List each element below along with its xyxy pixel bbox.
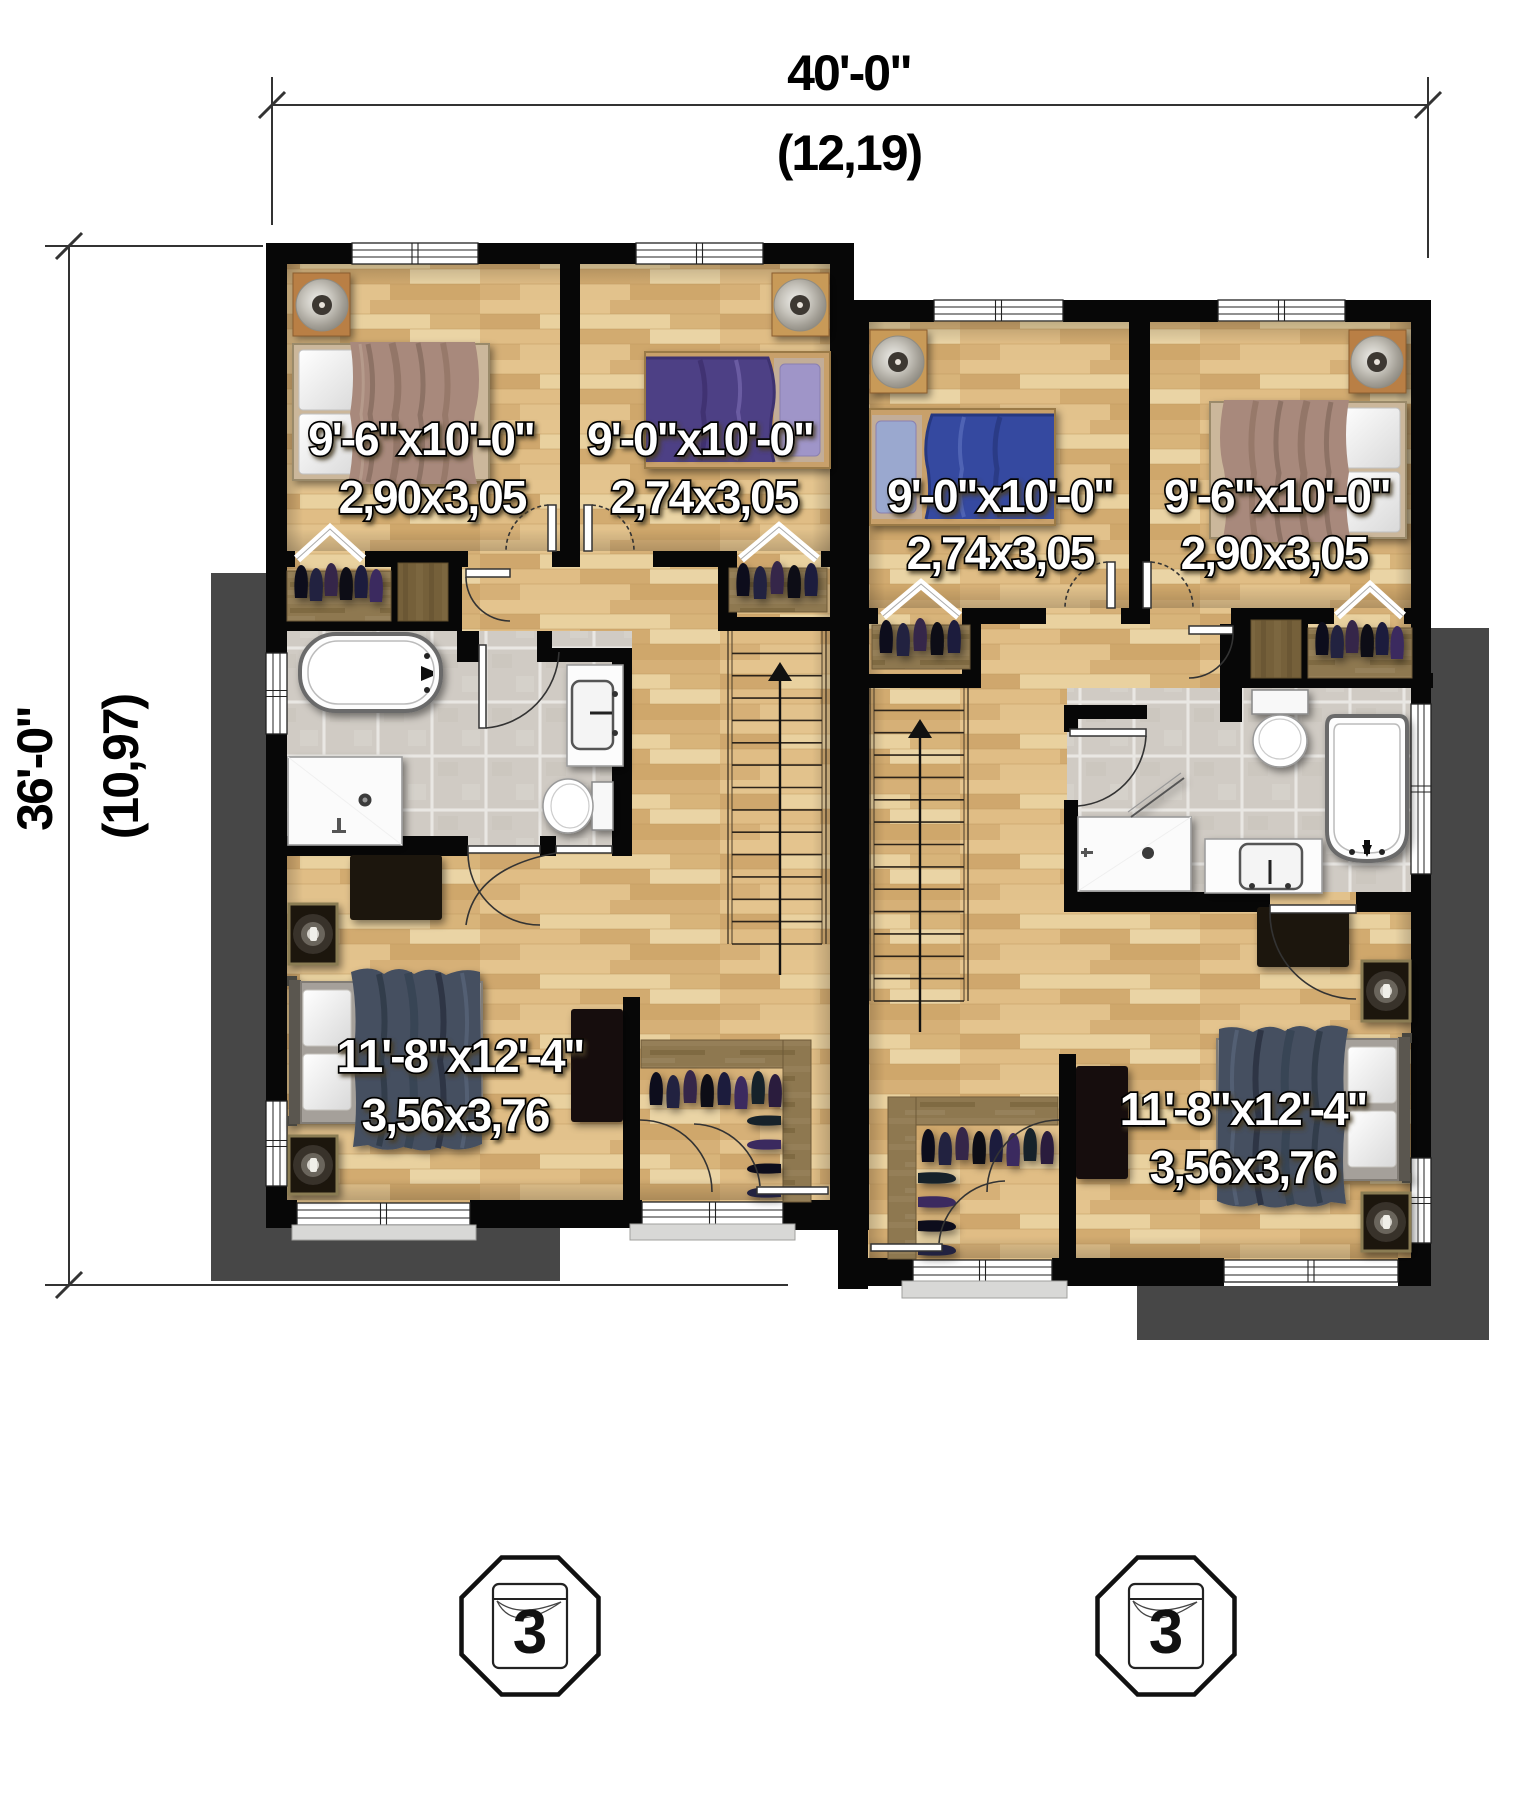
svg-text:11'-8"x12'-4": 11'-8"x12'-4" bbox=[337, 1030, 584, 1082]
svg-text:40'-0": 40'-0" bbox=[787, 45, 911, 101]
svg-text:3,56x3,76: 3,56x3,76 bbox=[362, 1089, 549, 1141]
svg-text:2,90x3,05: 2,90x3,05 bbox=[1181, 527, 1369, 579]
svg-text:36'-0": 36'-0" bbox=[7, 707, 63, 831]
svg-text:(10,97): (10,97) bbox=[93, 694, 149, 839]
svg-text:9'-6"x10'-0": 9'-6"x10'-0" bbox=[308, 413, 534, 465]
svg-text:9'-0"x10'-0": 9'-0"x10'-0" bbox=[587, 413, 813, 465]
svg-text:(12,19): (12,19) bbox=[777, 125, 922, 181]
svg-text:9'-6"x10'-0": 9'-6"x10'-0" bbox=[1164, 470, 1390, 522]
svg-text:11'-8"x12'-4": 11'-8"x12'-4" bbox=[1120, 1083, 1367, 1135]
svg-text:2,90x3,05: 2,90x3,05 bbox=[339, 471, 527, 523]
svg-text:3,56x3,76: 3,56x3,76 bbox=[1150, 1141, 1337, 1193]
svg-text:3: 3 bbox=[513, 1598, 547, 1667]
svg-text:2,74x3,05: 2,74x3,05 bbox=[907, 527, 1095, 579]
svg-text:9'-0"x10'-0": 9'-0"x10'-0" bbox=[887, 470, 1113, 522]
svg-text:3: 3 bbox=[1149, 1598, 1183, 1667]
svg-text:2,74x3,05: 2,74x3,05 bbox=[611, 471, 799, 523]
